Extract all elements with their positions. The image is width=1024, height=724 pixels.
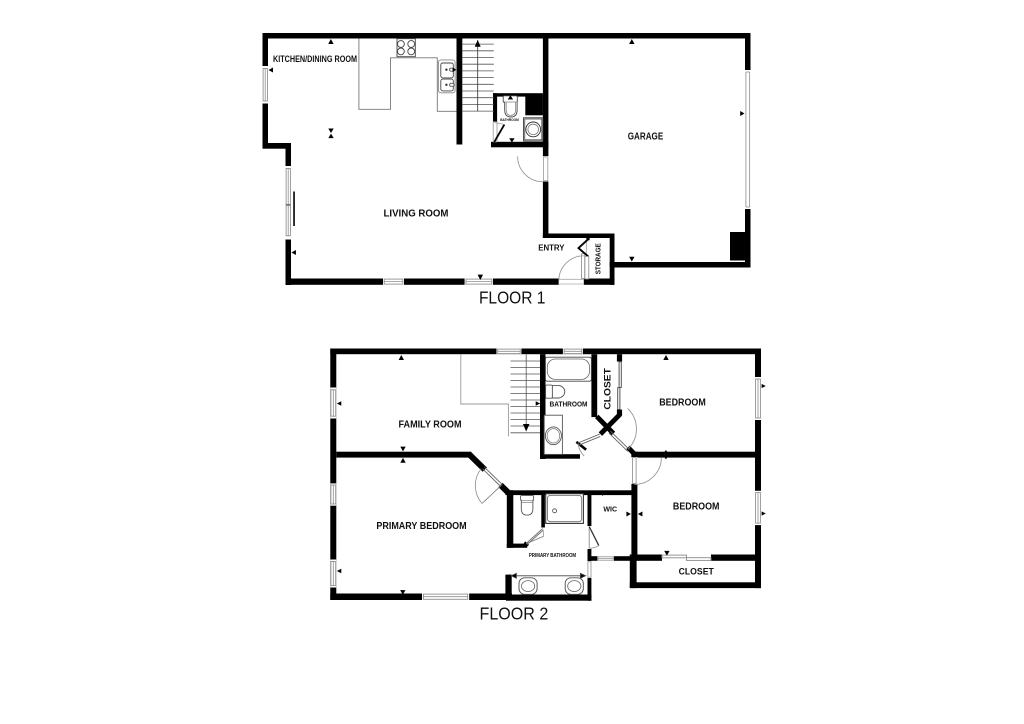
svg-text:GARAGE: GARAGE <box>628 132 664 143</box>
svg-text:FAMILY ROOM: FAMILY ROOM <box>399 419 462 430</box>
svg-text:BATHROOM: BATHROOM <box>500 118 519 122</box>
svg-text:BATHROOM: BATHROOM <box>550 400 588 409</box>
svg-text:WIC: WIC <box>603 504 617 513</box>
svg-text:BEDROOM: BEDROOM <box>673 501 720 512</box>
svg-text:STORAGE: STORAGE <box>596 243 603 274</box>
svg-text:CLOSET: CLOSET <box>679 567 714 578</box>
svg-text:FLOOR 2: FLOOR 2 <box>480 604 549 624</box>
svg-text:BEDROOM: BEDROOM <box>659 397 706 408</box>
svg-text:FLOOR 1: FLOOR 1 <box>479 288 546 308</box>
svg-text:LIVING ROOM: LIVING ROOM <box>384 209 449 220</box>
svg-text:ENTRY: ENTRY <box>538 243 565 252</box>
svg-text:PRIMARY BEDROOM: PRIMARY BEDROOM <box>376 521 466 532</box>
svg-text:KITCHEN/DINING ROOM: KITCHEN/DINING ROOM <box>273 54 357 64</box>
svg-text:CLOSET: CLOSET <box>603 368 613 410</box>
svg-text:PRIMARY BATHROOM: PRIMARY BATHROOM <box>529 553 576 559</box>
